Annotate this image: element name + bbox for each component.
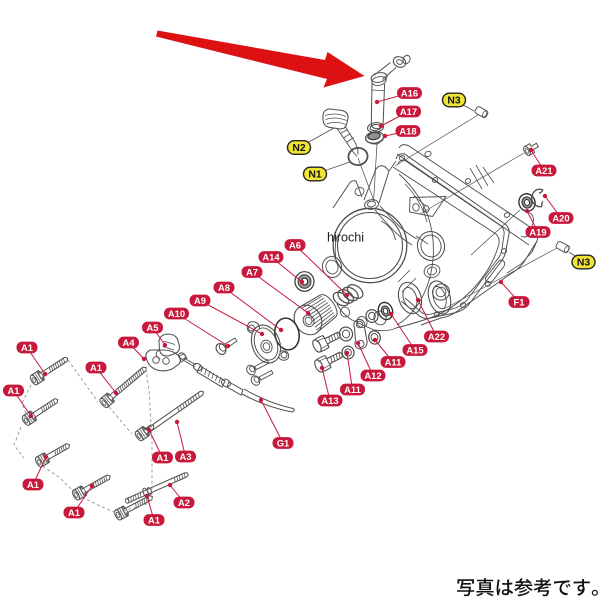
svg-text:A15: A15 xyxy=(406,344,423,355)
svg-text:A11: A11 xyxy=(385,356,402,367)
svg-text:A5: A5 xyxy=(147,322,159,333)
svg-text:A18: A18 xyxy=(399,125,416,136)
svg-text:A2: A2 xyxy=(178,497,190,508)
svg-text:N1: N1 xyxy=(308,170,322,181)
svg-text:A4: A4 xyxy=(123,337,136,348)
svg-text:A22: A22 xyxy=(428,331,445,342)
svg-text:A11: A11 xyxy=(344,384,361,395)
svg-text:N2: N2 xyxy=(292,143,306,154)
svg-text:A20: A20 xyxy=(552,212,569,223)
svg-text:A13: A13 xyxy=(321,395,338,406)
svg-text:A1: A1 xyxy=(148,514,160,525)
svg-text:A1: A1 xyxy=(90,362,102,373)
svg-text:A1: A1 xyxy=(157,452,169,463)
svg-text:G1: G1 xyxy=(277,437,290,448)
svg-text:A9: A9 xyxy=(194,295,206,306)
svg-text:A1: A1 xyxy=(68,507,80,518)
svg-text:A7: A7 xyxy=(246,266,258,277)
svg-text:N3: N3 xyxy=(447,96,461,107)
svg-text:A10: A10 xyxy=(168,308,185,319)
svg-text:A6: A6 xyxy=(289,239,301,250)
svg-text:A1: A1 xyxy=(27,479,39,490)
svg-text:A16: A16 xyxy=(401,87,418,98)
svg-text:A21: A21 xyxy=(535,165,552,176)
svg-text:F1: F1 xyxy=(514,296,525,307)
svg-text:A19: A19 xyxy=(529,226,546,237)
svg-text:A14: A14 xyxy=(262,251,280,262)
svg-text:A1: A1 xyxy=(21,342,33,353)
svg-text:A17: A17 xyxy=(400,106,417,117)
svg-text:A1: A1 xyxy=(8,385,20,396)
svg-text:hirochi: hirochi xyxy=(327,231,364,245)
svg-text:A8: A8 xyxy=(218,282,230,293)
svg-text:N3: N3 xyxy=(577,258,591,269)
svg-text:A12: A12 xyxy=(364,370,381,381)
svg-text:A3: A3 xyxy=(180,451,192,462)
